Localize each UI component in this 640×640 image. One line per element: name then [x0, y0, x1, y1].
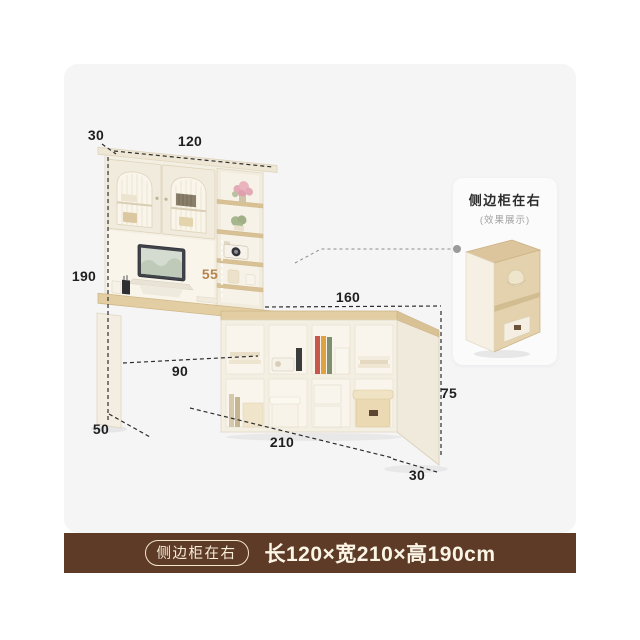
dim-label-hutch-clearance: 55: [202, 266, 218, 282]
bookcase-illustration: [221, 311, 448, 473]
dim-label-desk-width: 90: [172, 363, 188, 379]
side-panel-subtitle: (效果展示): [453, 212, 557, 226]
variant-badge: 侧边柜在右: [145, 540, 249, 566]
product-card: 30 120 190 55 90 50 160 75 210 30 侧边柜在右 …: [64, 64, 576, 533]
product-image: 30 120 190 55 90 50 160 75 210 30 侧边柜在右 …: [0, 0, 640, 640]
dim-label-shelf-depth: 30: [409, 467, 425, 483]
dim-label-shelf-height: 75: [441, 385, 457, 401]
side-panel-title: 侧边柜在右: [453, 190, 557, 209]
side-cabinet-thumbnail: [460, 230, 550, 360]
connector-dot: [453, 245, 461, 253]
size-text: 长120×宽210×高190cm: [265, 538, 496, 568]
dim-label-shelf-top-width: 160: [336, 289, 360, 305]
side-preview-panel: 侧边柜在右 (效果展示): [453, 178, 557, 365]
dim-label-top-depth: 30: [88, 127, 104, 143]
dim-label-desk-depth: 50: [93, 421, 109, 437]
footer-bar: 侧边柜在右 长120×宽210×高190cm: [64, 533, 576, 573]
connector-line: [295, 249, 453, 263]
dim-label-shelf-width: 210: [270, 434, 294, 450]
dim-label-top-width: 120: [178, 133, 202, 149]
dim-label-height: 190: [72, 268, 96, 284]
